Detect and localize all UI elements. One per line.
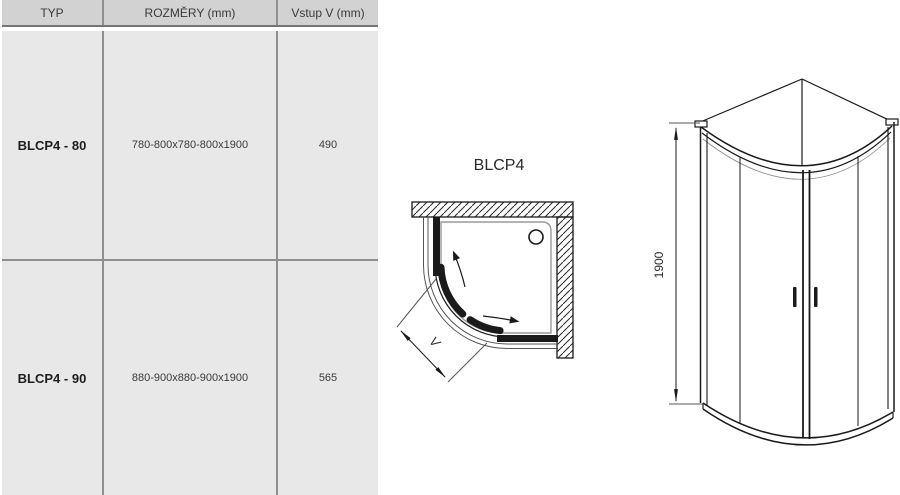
plan-view-drawing: BLCP4 (395, 150, 605, 396)
table-row: BLCP4 - 80 780-800x780-800x1900 490 (2, 31, 378, 261)
spec-sheet: TYP ROZMĚRY (mm) Vstup V (mm) BLCP4 - 80… (0, 0, 900, 495)
drain-circle (529, 230, 543, 244)
col-header-vstup: Vstup V (mm) (278, 0, 378, 25)
top-rail (695, 119, 898, 179)
spec-table: TYP ROZMĚRY (mm) Vstup V (mm) BLCP4 - 80… (2, 0, 378, 495)
col-header-rozmery: ROZMĚRY (mm) (102, 0, 278, 25)
plan-title: BLCP4 (474, 157, 525, 174)
bottom-rail (703, 403, 893, 445)
height-dimension-label: 1900 (652, 251, 666, 278)
door-handles (793, 287, 818, 307)
elevation-view-drawing: 1900 (650, 70, 900, 460)
cell-vstup: 490 (278, 31, 378, 259)
table-header-row: TYP ROZMĚRY (mm) Vstup V (mm) (2, 0, 378, 27)
table-row: BLCP4 - 90 880-900x880-900x1900 565 (2, 261, 378, 495)
table-body: BLCP4 - 80 780-800x780-800x1900 490 BLCP… (2, 31, 378, 495)
cell-rozmery: 780-800x780-800x1900 (102, 31, 278, 259)
top-edges (698, 79, 893, 166)
cell-typ: BLCP4 - 80 (2, 31, 102, 259)
cell-typ: BLCP4 - 90 (2, 261, 102, 495)
frame-and-glass-edges (701, 122, 895, 439)
col-header-typ: TYP (2, 0, 102, 25)
cell-vstup: 565 (278, 261, 378, 495)
cell-rozmery: 880-900x880-900x1900 (102, 261, 278, 495)
height-dimension: 1900 (652, 123, 703, 404)
wall-right (557, 217, 573, 358)
wall-top (412, 202, 573, 217)
entry-width-label: V (426, 333, 444, 351)
